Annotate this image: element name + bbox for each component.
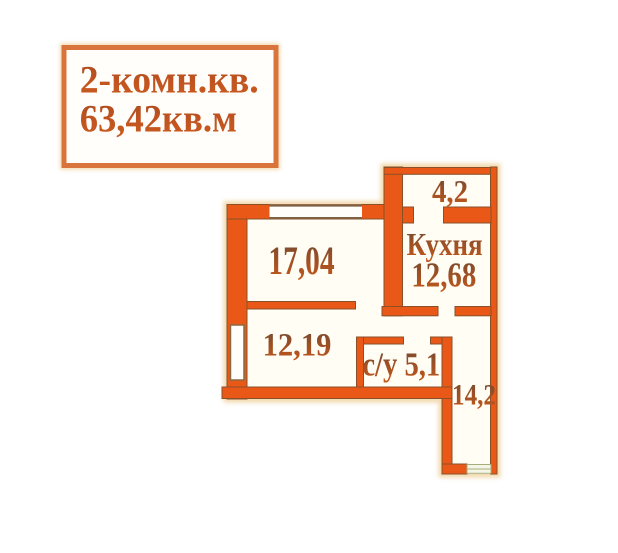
svg-text:12,68: 12,68: [411, 255, 476, 294]
svg-text:с/у 5,1: с/у 5,1: [362, 347, 440, 384]
svg-text:17,04: 17,04: [268, 238, 334, 283]
svg-text:14,2: 14,2: [452, 379, 496, 412]
svg-text:12,19: 12,19: [263, 328, 332, 364]
svg-text:4,2: 4,2: [432, 174, 468, 209]
svg-text:63,42кв.м: 63,42кв.м: [80, 97, 237, 140]
svg-text:2-комн.кв.: 2-комн.кв.: [80, 58, 259, 101]
